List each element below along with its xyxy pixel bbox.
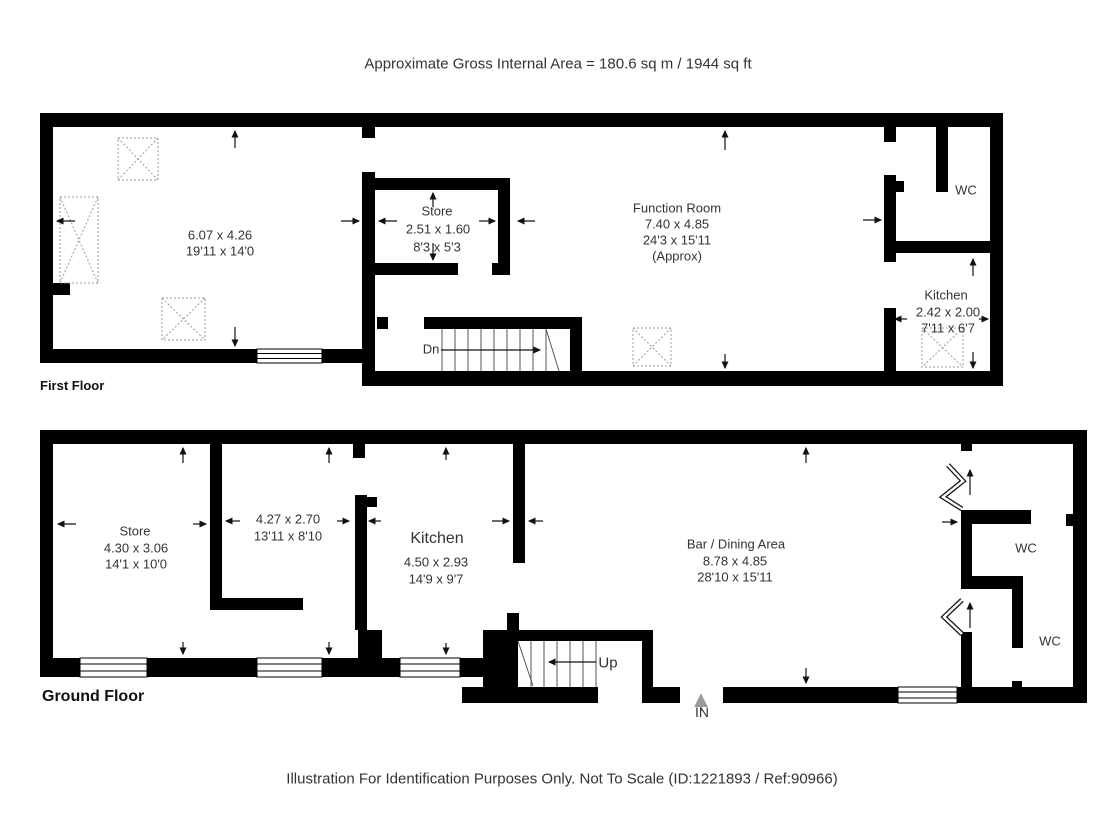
wall-segment [1066,514,1073,526]
wall-segment [147,658,257,677]
floorplan-drawing [0,0,1100,820]
roof-window-icon [162,298,205,340]
wall-segment [40,113,53,363]
wall-segment [723,687,898,703]
roof-window-outline [60,197,98,283]
wall-segment [355,495,367,630]
ff-store-label: Store [421,205,452,218]
disclaimer-note: Illustration For Identification Purposes… [286,772,837,787]
gf-store-label: Store [119,525,150,538]
gf-wc2-label: WC [1039,635,1061,648]
ff-stairs-label: Dn [423,343,440,356]
first-floor-title: First Floor [40,378,104,393]
wall-segment [462,687,598,703]
gf-wc1-label: WC [1015,542,1037,555]
gf-entrance-label: IN [695,705,709,719]
folding-door-icon [944,600,962,634]
wall-segment [642,687,680,703]
wall-segment [642,630,653,688]
wall-segment [210,598,303,610]
gf-stairs-label: Up [598,656,617,671]
ground-floor-title: Ground Floor [42,688,144,706]
ff-main-room-dims-m: 6.07 x 4.26 [188,229,252,242]
wall-segment [884,308,896,371]
roof-window-icon [60,197,98,283]
wall-segment [40,113,1003,127]
roof-window-outline [60,197,98,283]
wall-segment [513,430,525,563]
wall-segment [570,317,582,371]
window [257,349,322,363]
ff-function-room-label: Function Room [633,202,721,215]
wall-segment [1012,681,1022,688]
wall-segment [210,444,222,610]
gf-kitchen-label: Kitchen [410,531,463,547]
stair-tread [546,329,559,371]
ff-function-room-note: (Approx) [652,250,702,263]
floorplan-page: Approximate Gross Internal Area = 180.6 … [0,0,1100,820]
wall-segment [961,632,972,688]
wall-segment [365,371,1003,386]
roof-window-outline [60,197,98,283]
gf-bar-dining-label: Bar / Dining Area [687,538,785,551]
first-floor-plan [40,113,1003,386]
ff-function-room-dims-ft: 24'3 x 15'11 [643,234,711,247]
wall-segment [40,430,1087,444]
wall-segment [957,687,1087,703]
stairs-down [441,329,559,371]
ff-main-room-dims-ft: 19'11 x 14'0 [186,245,254,258]
wall-segment [353,444,365,458]
wall-segment [362,178,510,190]
wall-segment [498,178,510,268]
ff-kitchen-label: Kitchen [924,289,967,302]
stairs-up [518,641,596,687]
wall-segment [362,172,375,386]
wall-segment [936,127,948,192]
roof-window-icon [633,328,671,366]
wall-segment [40,658,80,677]
gf-store-dims-ft: 14'1 x 10'0 [105,558,167,571]
wall-segment [40,349,257,363]
ground-floor-plan [40,430,1087,711]
wall-segment [375,263,458,275]
gf-bar-dining-dims-ft: 28'10 x 15'11 [697,571,773,584]
gf-room2-dims-m: 4.27 x 2.70 [256,513,320,526]
wall-segment [507,613,519,630]
gf-bar-dining-dims-m: 8.78 x 4.85 [703,555,767,568]
ff-function-room-dims-m: 7.40 x 4.85 [645,218,709,231]
ff-kitchen-dims-ft: 7'11 x 6'7 [921,322,975,335]
wall-segment [961,444,972,451]
window [898,687,957,703]
wall-segment [362,127,375,138]
gf-store-dims-m: 4.30 x 3.06 [104,542,168,555]
ff-store-dims-m: 2.51 x 1.60 [406,223,470,236]
wall-segment [961,510,1031,524]
ff-wc-label: WC [955,184,977,197]
ff-kitchen-dims-m: 2.42 x 2.00 [916,306,980,319]
wall-segment [1073,430,1087,703]
wall-segment [424,317,582,329]
wall-segment [890,241,1003,253]
gf-room2-dims-ft: 13'11 x 8'10 [254,530,322,543]
wall-segment [896,181,904,192]
wall-segment [40,430,53,677]
ff-store-dims-ft: 8'3 x 5'3 [413,241,461,254]
window [80,658,147,677]
wall-segment [884,127,896,142]
wall-segment [367,497,377,507]
window [400,658,460,677]
wall-segment [1012,576,1023,648]
page-title: Approximate Gross Internal Area = 180.6 … [364,57,751,72]
gf-kitchen-dims-m: 4.50 x 2.93 [404,556,468,569]
wall-segment [492,263,510,275]
roof-window-icon [118,138,158,180]
folding-door-icon [943,465,963,509]
gf-kitchen-dims-ft: 14'9 x 9'7 [409,573,464,586]
window [257,658,322,677]
wall-segment [40,283,70,295]
wall-segment [358,630,382,677]
wall-segment [377,317,388,329]
